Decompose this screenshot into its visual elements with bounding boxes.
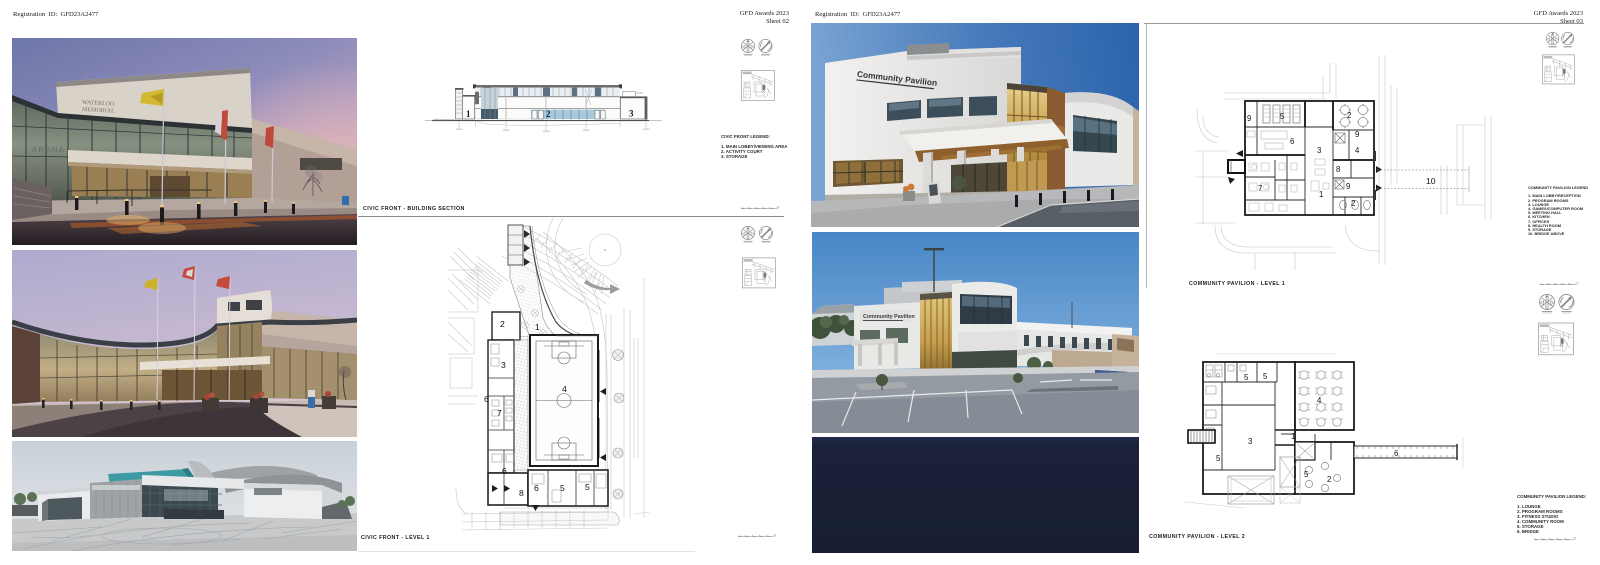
svg-text:5: 5: [1216, 454, 1221, 463]
svg-text:8: 8: [1336, 165, 1340, 174]
svg-text:2: 2: [1351, 199, 1355, 208]
svg-text:6: 6: [484, 394, 489, 404]
svg-text:1: 1: [535, 322, 540, 332]
svg-text:9: 9: [1355, 130, 1359, 139]
svg-text:3: 3: [1248, 437, 1252, 446]
svg-text:9: 9: [1346, 182, 1350, 191]
svg-text:2: 2: [1327, 475, 1331, 484]
svg-text:4: 4: [1317, 396, 1322, 405]
svg-text:1: 1: [466, 109, 471, 119]
svg-text:6: 6: [1290, 137, 1294, 146]
svg-text:5: 5: [1244, 373, 1249, 382]
svg-text:3: 3: [501, 360, 506, 370]
svg-text:10: 10: [1426, 176, 1436, 186]
svg-text:ARENA: ARENA: [32, 145, 65, 154]
svg-text:5: 5: [585, 482, 590, 492]
svg-text:6: 6: [1394, 449, 1398, 458]
svg-text:7: 7: [497, 408, 502, 418]
svg-text:5: 5: [1304, 470, 1309, 479]
svg-text:Community Pavilion: Community Pavilion: [863, 314, 915, 320]
svg-text:2: 2: [546, 109, 551, 119]
svg-text:5: 5: [1263, 372, 1268, 381]
svg-text:2: 2: [500, 319, 505, 329]
svg-text:4: 4: [1355, 146, 1360, 155]
svg-text:1: 1: [1319, 190, 1323, 199]
svg-text:2: 2: [1347, 111, 1351, 120]
svg-text:5: 5: [1280, 112, 1285, 121]
svg-text:8: 8: [519, 488, 524, 498]
svg-text:1: 1: [1291, 432, 1295, 441]
svg-text:6: 6: [534, 483, 539, 493]
svg-text:3: 3: [629, 108, 634, 118]
svg-text:5: 5: [560, 483, 565, 493]
svg-text:6: 6: [502, 466, 507, 476]
svg-text:9: 9: [1247, 114, 1251, 123]
svg-text:3: 3: [1317, 146, 1321, 155]
svg-text:7: 7: [1258, 184, 1262, 193]
svg-text:4: 4: [562, 384, 567, 394]
